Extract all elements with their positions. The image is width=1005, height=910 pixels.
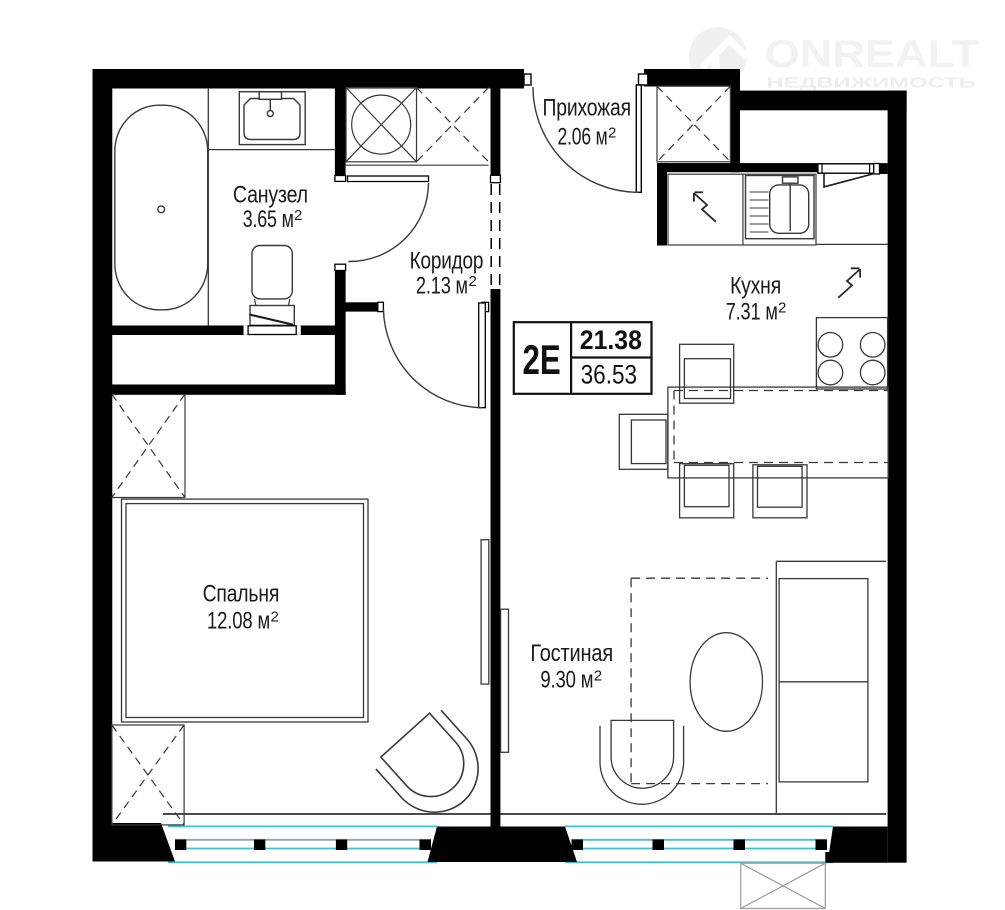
svg-text:2Е: 2Е	[523, 336, 561, 383]
svg-text:Прихожая: Прихожая	[543, 95, 631, 122]
svg-text:3.65 м: 3.65 м	[243, 206, 294, 233]
svg-text:2: 2	[271, 609, 279, 626]
svg-text:Санузел: Санузел	[233, 181, 308, 208]
svg-text:НЕДВИЖИМОСТЬ: НЕДВИЖИМОСТЬ	[766, 76, 975, 92]
svg-text:9.30 м: 9.30 м	[540, 667, 593, 694]
svg-text:36.53: 36.53	[581, 359, 638, 389]
svg-text:2.06 м: 2.06 м	[558, 123, 608, 150]
svg-text:7.31 м: 7.31 м	[726, 299, 778, 326]
svg-text:2: 2	[469, 273, 477, 290]
svg-text:2: 2	[608, 125, 616, 142]
svg-text:Гостиная: Гостиная	[530, 640, 613, 667]
svg-text:Спальня: Спальня	[203, 581, 280, 608]
svg-text:Кухня: Кухня	[730, 273, 781, 300]
svg-text:2: 2	[594, 668, 602, 685]
svg-text:12.08 м: 12.08 м	[207, 608, 270, 635]
svg-text:2: 2	[778, 300, 786, 317]
svg-text:21.38: 21.38	[580, 325, 642, 355]
svg-text:2: 2	[294, 207, 302, 224]
svg-text:Коридор: Коридор	[410, 248, 484, 275]
svg-text:ONREALT: ONREALT	[765, 33, 980, 76]
svg-text:2.13 м: 2.13 м	[416, 272, 468, 299]
